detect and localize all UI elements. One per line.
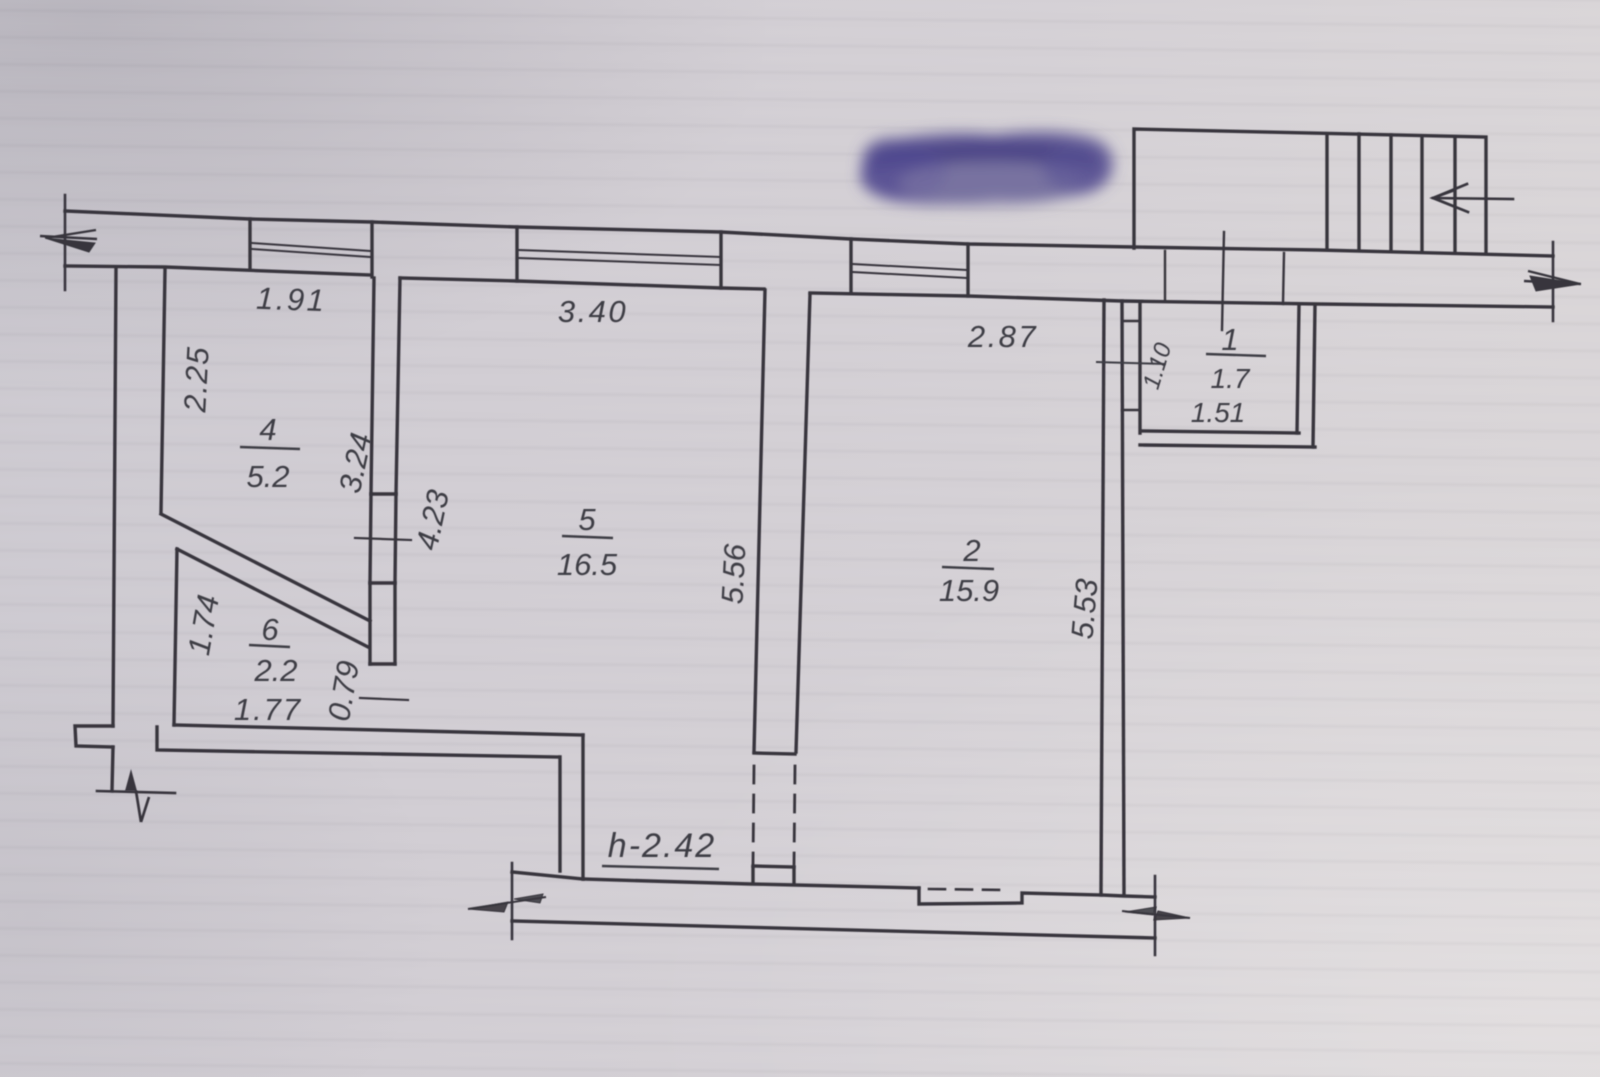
svg-text:5.53: 5.53: [1064, 577, 1104, 640]
svg-text:15.9: 15.9: [939, 573, 999, 608]
svg-text:h-2.42: h-2.42: [608, 827, 716, 865]
svg-text:1.51: 1.51: [1191, 397, 1246, 428]
svg-text:3.40: 3.40: [558, 294, 628, 329]
svg-text:1.7: 1.7: [1211, 363, 1251, 394]
svg-text:4: 4: [259, 412, 276, 447]
svg-text:2: 2: [962, 533, 980, 568]
svg-text:2.25: 2.25: [177, 345, 215, 414]
svg-text:5.56: 5.56: [714, 542, 752, 605]
svg-text:2.87: 2.87: [967, 319, 1038, 354]
svg-text:5: 5: [578, 502, 596, 537]
svg-text:1: 1: [1221, 322, 1238, 357]
svg-text:5.2: 5.2: [246, 459, 289, 494]
svg-text:1.74: 1.74: [181, 592, 226, 658]
svg-text:1.91: 1.91: [256, 281, 328, 318]
svg-text:1.10: 1.10: [1138, 339, 1178, 392]
svg-text:0.79: 0.79: [321, 658, 366, 724]
svg-text:2.2: 2.2: [253, 653, 297, 688]
svg-text:1.77: 1.77: [234, 692, 302, 727]
svg-text:16.5: 16.5: [557, 547, 618, 582]
svg-text:6: 6: [261, 612, 279, 647]
svg-text:4.23: 4.23: [409, 487, 456, 553]
